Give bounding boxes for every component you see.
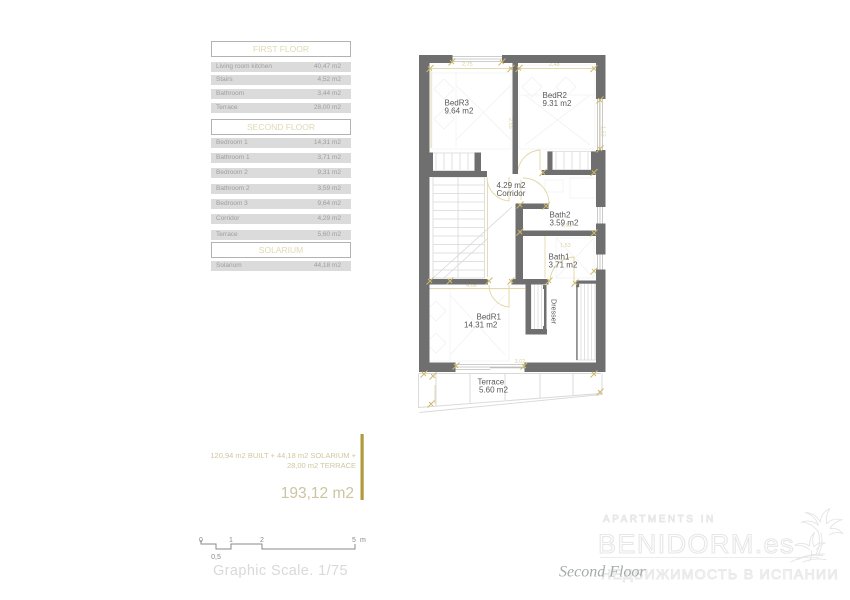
svg-text:5.60 m2: 5.60 m2 [479,386,508,395]
svg-text:1: 1 [229,537,233,544]
svg-text:2,55: 2,55 [507,118,513,129]
svg-text:3.59 m2: 3.59 m2 [550,219,579,228]
svg-text:1,53: 1,53 [560,243,571,249]
svg-text:120,94 m2 BUILT + 44,18 m2 SOL: 120,94 m2 BUILT + 44,18 m2 SOLARIUM + [210,451,356,460]
svg-text:m: m [360,537,366,544]
svg-text:2,75: 2,75 [462,62,473,68]
svg-text:5: 5 [352,537,356,544]
svg-text:BENIDORM.es: BENIDORM.es [598,529,795,559]
svg-text:9.31 m2: 9.31 m2 [543,99,572,108]
svg-text:28,00 m2 TERRACE: 28,00 m2 TERRACE [287,461,356,470]
svg-text:0: 0 [199,537,203,544]
svg-text:Graphic Scale. 1/75: Graphic Scale. 1/75 [213,563,348,579]
svg-text:APARTMENTS IN: APARTMENTS IN [603,514,716,525]
svg-text:9.64 m2: 9.64 m2 [445,107,474,116]
svg-text:Dresser: Dresser [550,299,559,325]
svg-text:193,12 m2: 193,12 m2 [281,485,354,502]
svg-text:0,5: 0,5 [211,554,221,561]
svg-text:Corridor: Corridor [497,189,526,198]
svg-text:Second Floor: Second Floor [559,564,646,581]
svg-text:2: 2 [260,537,264,544]
svg-text:14.31 m2: 14.31 m2 [464,321,498,330]
svg-text:3.71 m2: 3.71 m2 [549,261,578,270]
